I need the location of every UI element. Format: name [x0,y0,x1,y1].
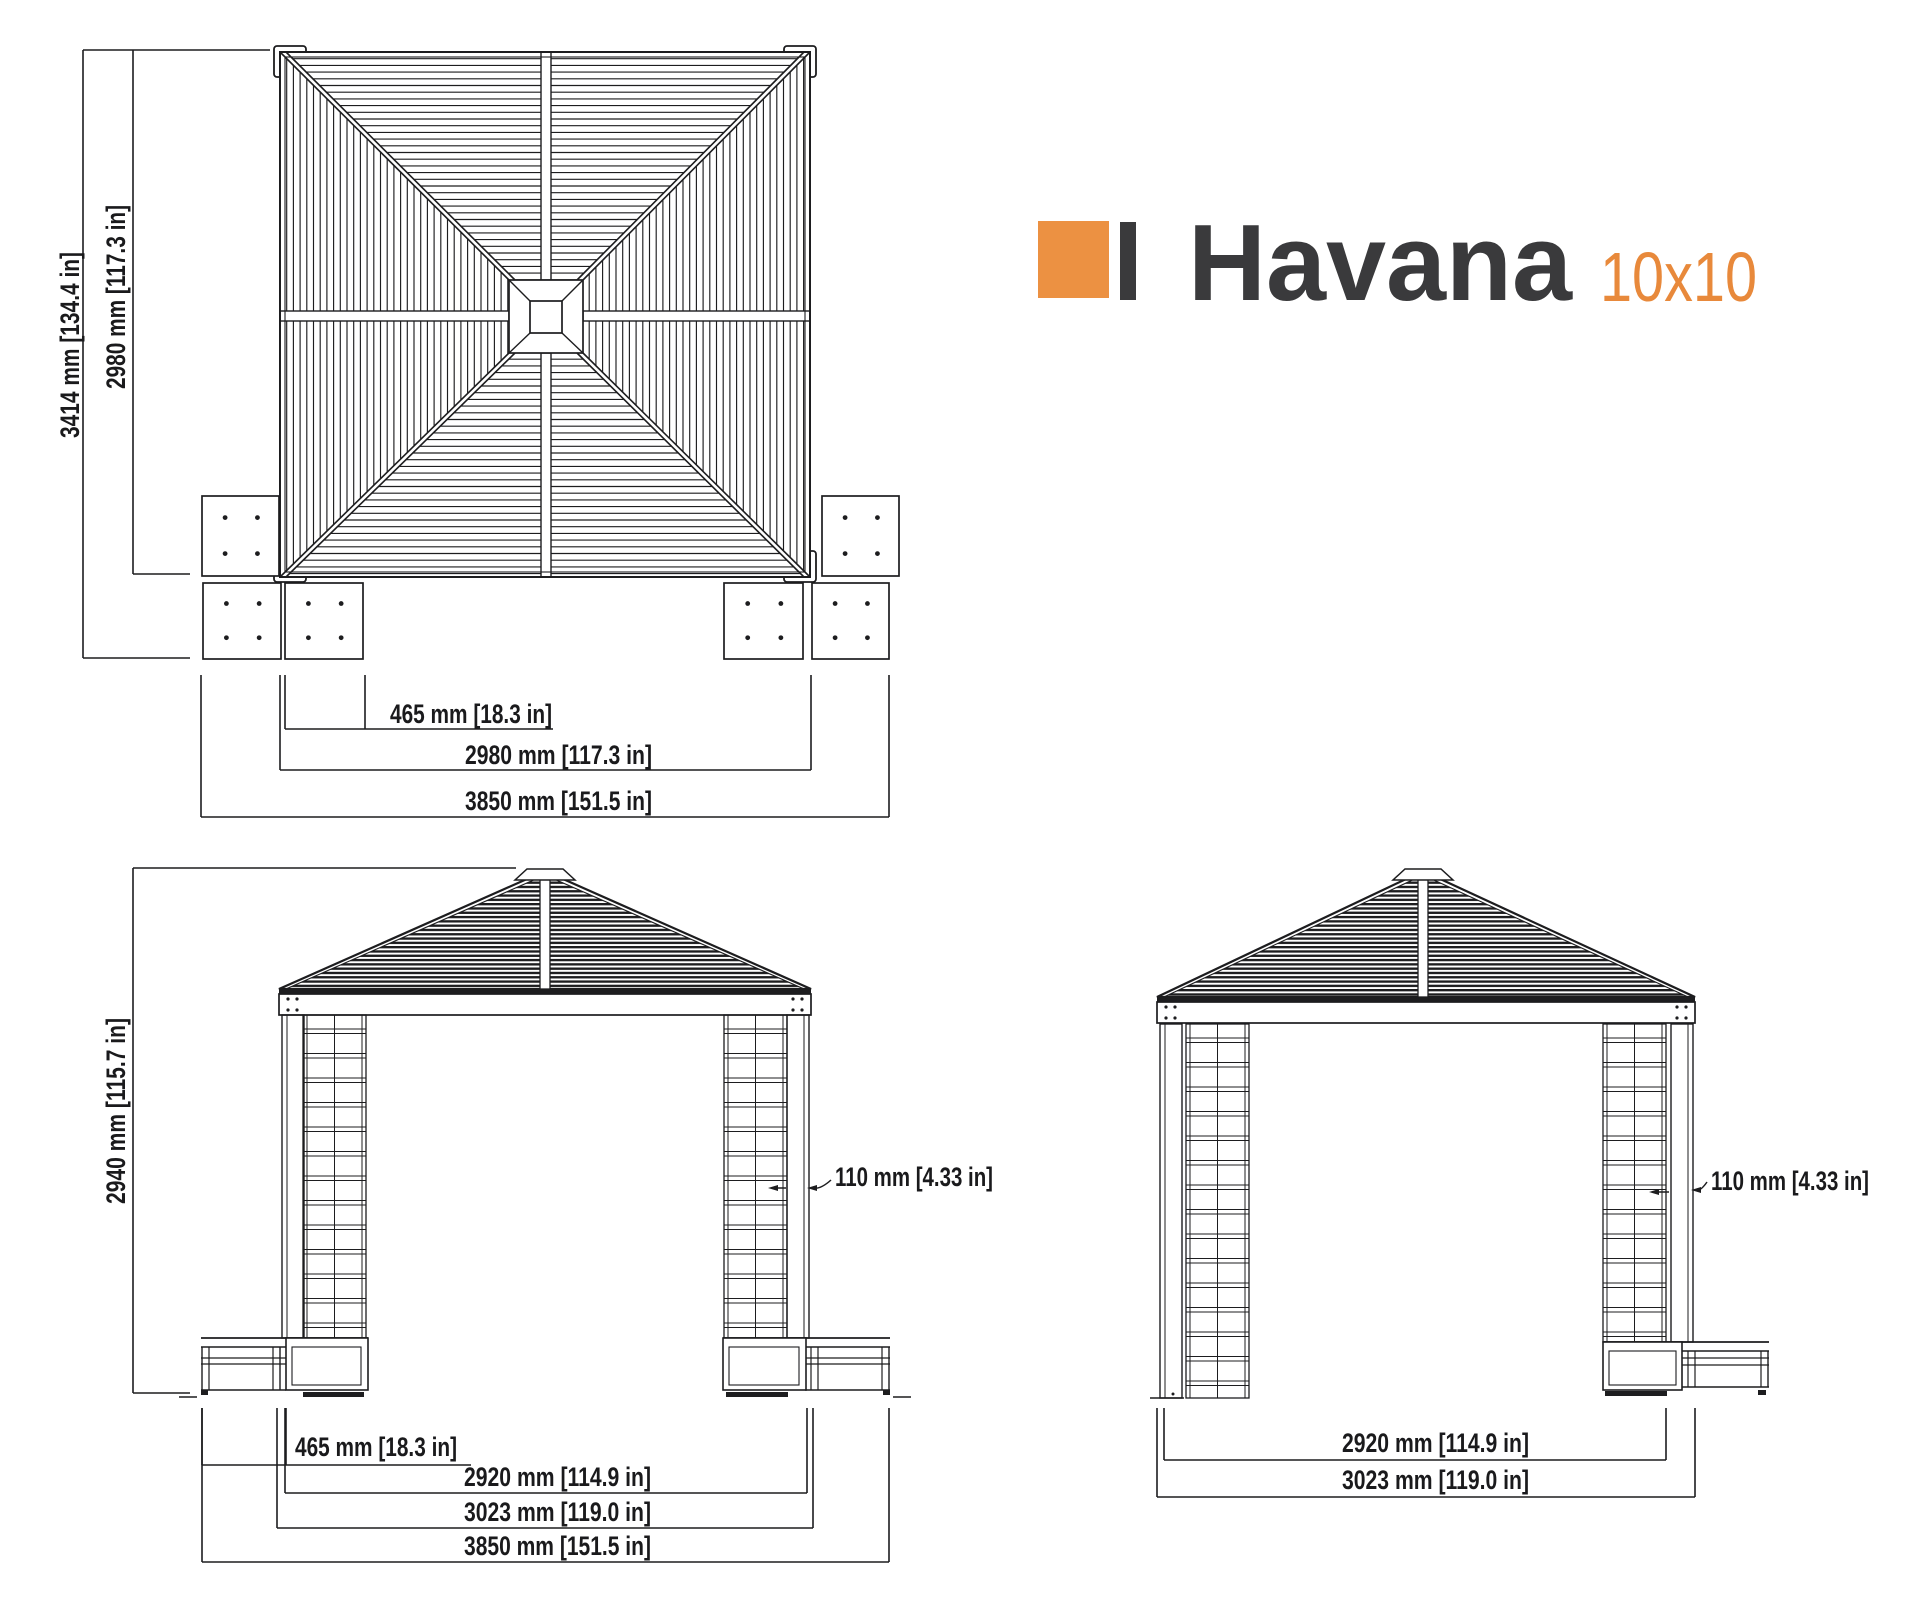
svg-text:3414 mm [134.4 in]: 3414 mm [134.4 in] [55,252,85,438]
svg-text:2980 mm [117.3 in]: 2980 mm [117.3 in] [465,740,652,770]
svg-text:3023 mm [119.0 in]: 3023 mm [119.0 in] [1342,1465,1529,1495]
svg-text:3023 mm [119.0 in]: 3023 mm [119.0 in] [464,1497,651,1527]
svg-text:2980 mm [117.3 in]: 2980 mm [117.3 in] [101,205,131,389]
svg-text:465 mm [18.3 in]: 465 mm [18.3 in] [295,1432,457,1462]
svg-text:3850 mm [151.5 in]: 3850 mm [151.5 in] [465,786,652,816]
svg-text:110 mm [4.33 in]: 110 mm [4.33 in] [835,1162,993,1192]
svg-text:Havana: Havana [1188,202,1573,324]
svg-text:465 mm [18.3 in]: 465 mm [18.3 in] [390,699,552,729]
svg-text:10x10: 10x10 [1600,238,1757,316]
svg-text:2920 mm [114.9 in]: 2920 mm [114.9 in] [464,1462,651,1492]
svg-text:2920 mm [114.9 in]: 2920 mm [114.9 in] [1342,1428,1529,1458]
svg-text:2940 mm [115.7 in]: 2940 mm [115.7 in] [101,1018,131,1204]
svg-text:110 mm [4.33 in]: 110 mm [4.33 in] [1711,1166,1869,1196]
svg-text:3850 mm [151.5 in]: 3850 mm [151.5 in] [464,1531,651,1561]
